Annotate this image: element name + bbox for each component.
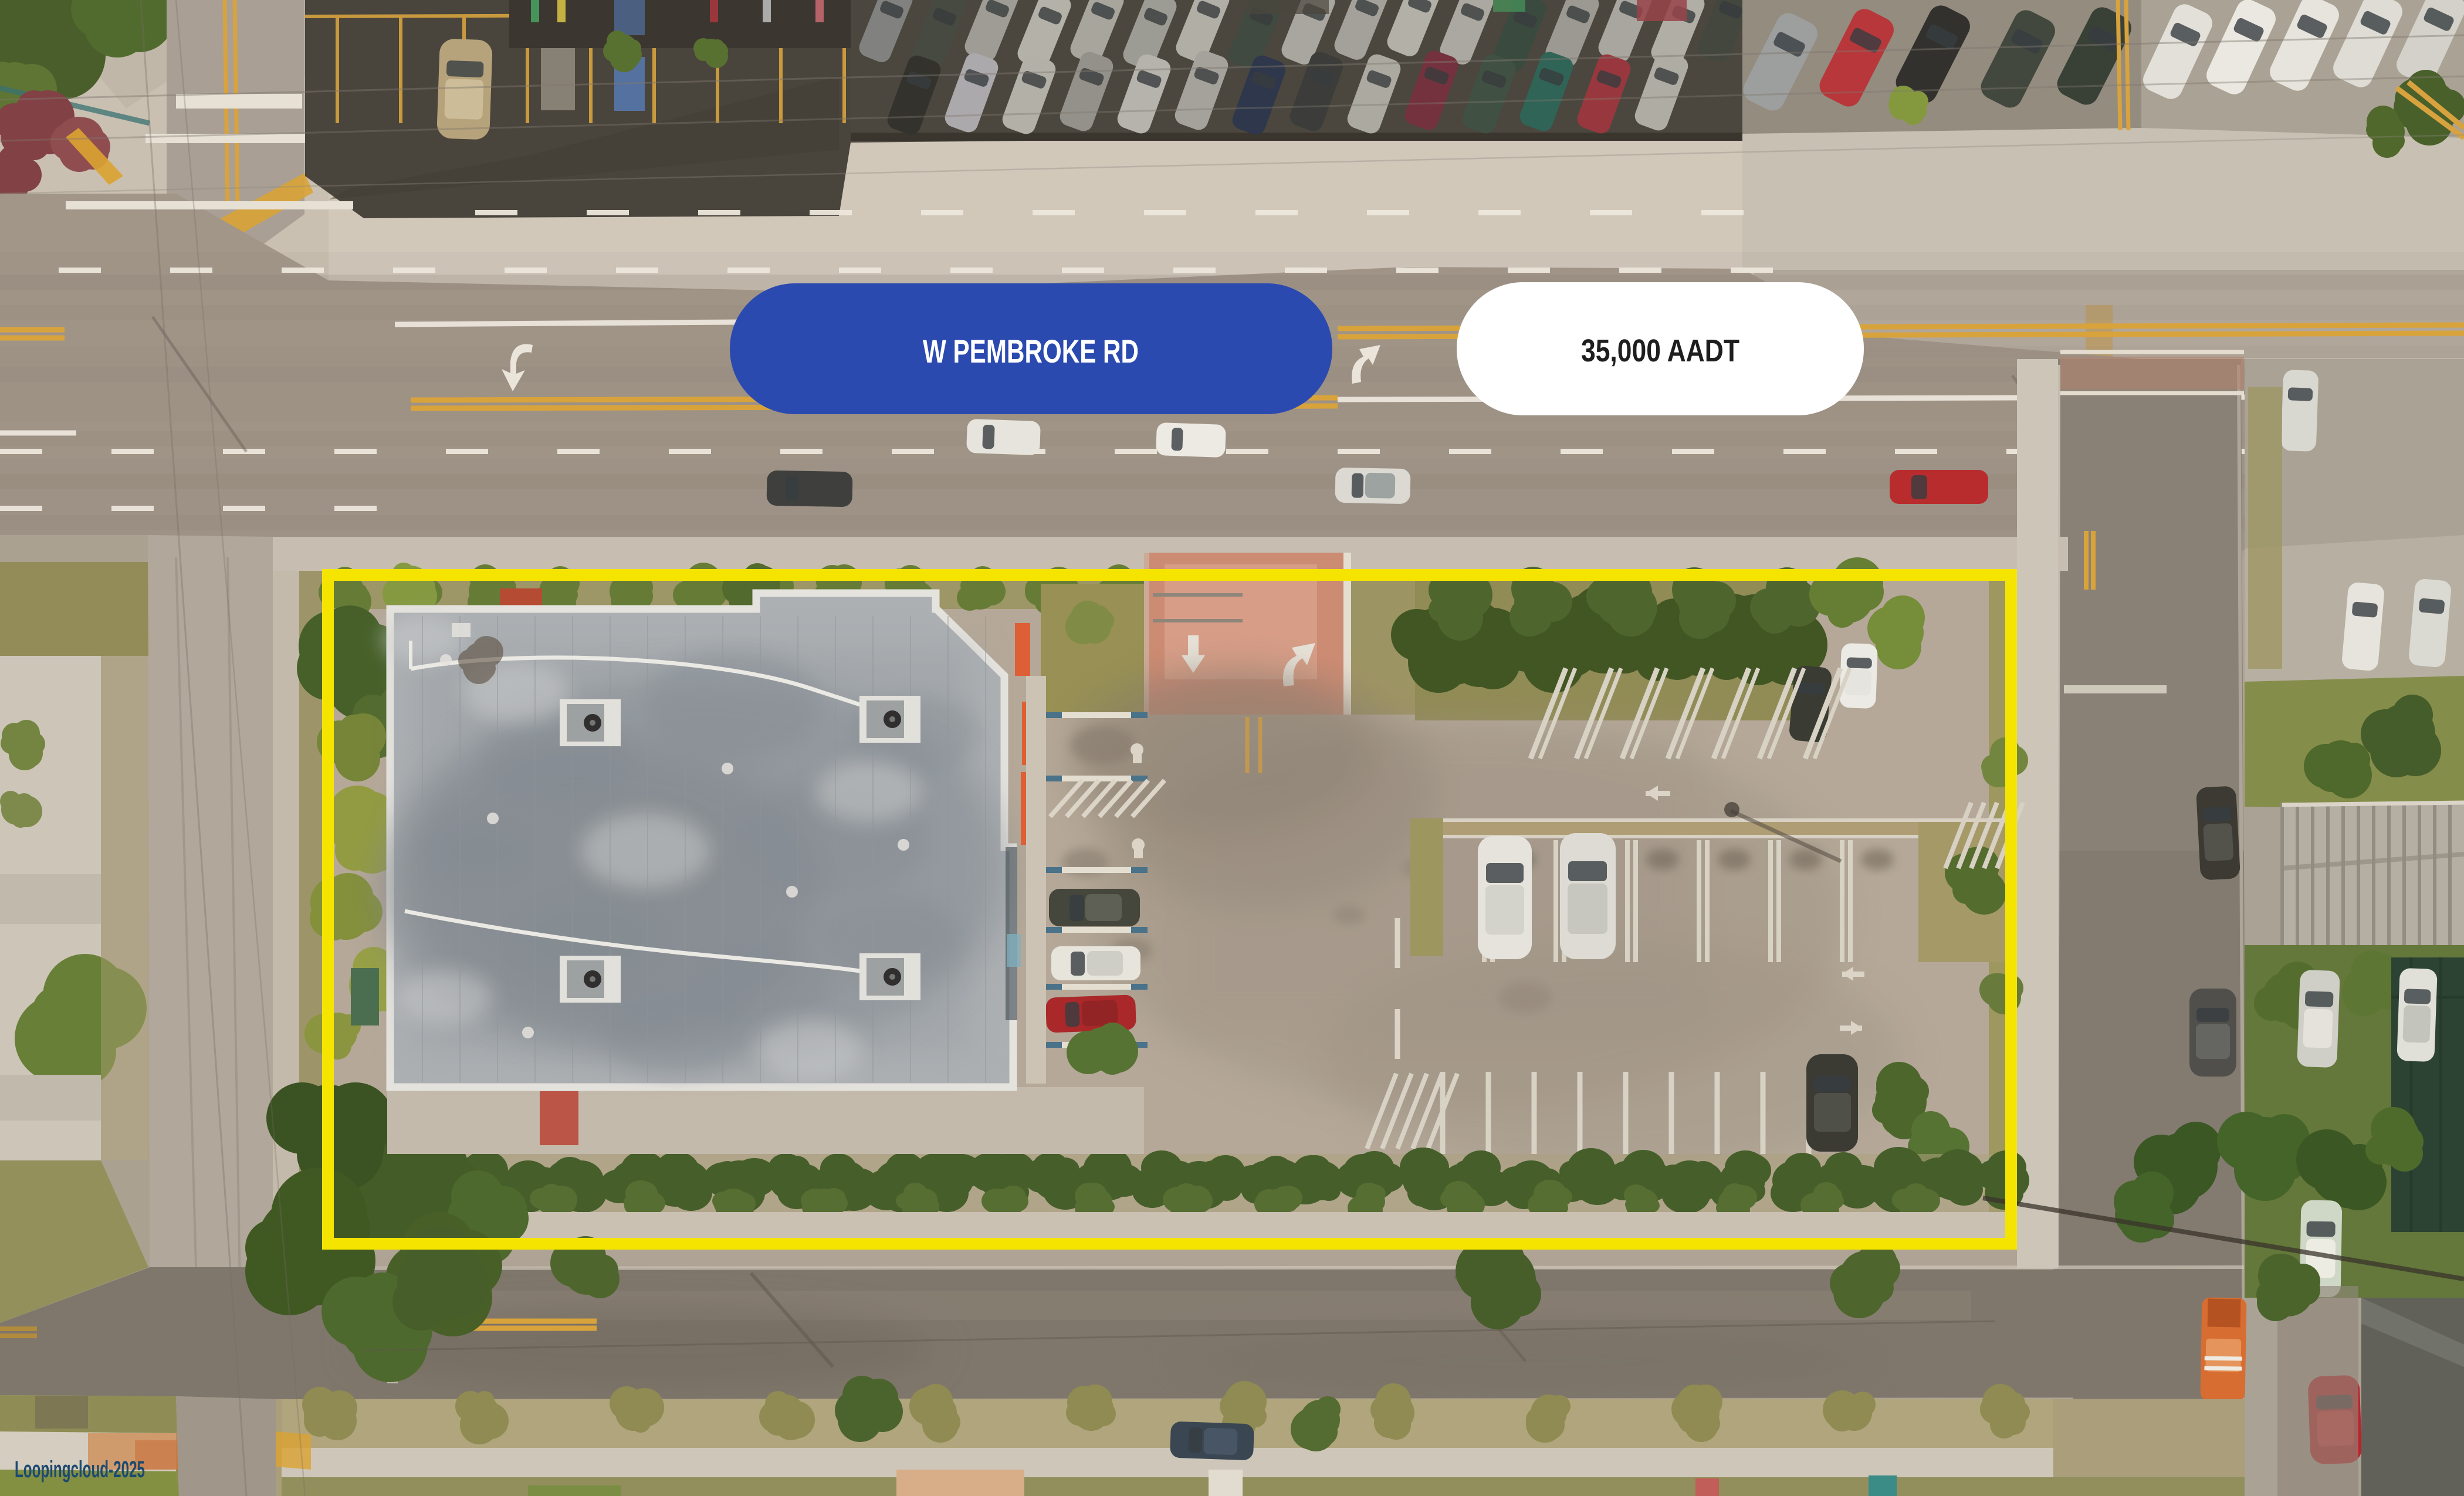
svg-text:W PEMBROKE RD: W PEMBROKE RD: [923, 333, 1139, 370]
svg-text:35,000 AADT: 35,000 AADT: [1581, 333, 1739, 368]
svg-text:Loopingcloud-2025: Loopingcloud-2025: [15, 1457, 145, 1483]
